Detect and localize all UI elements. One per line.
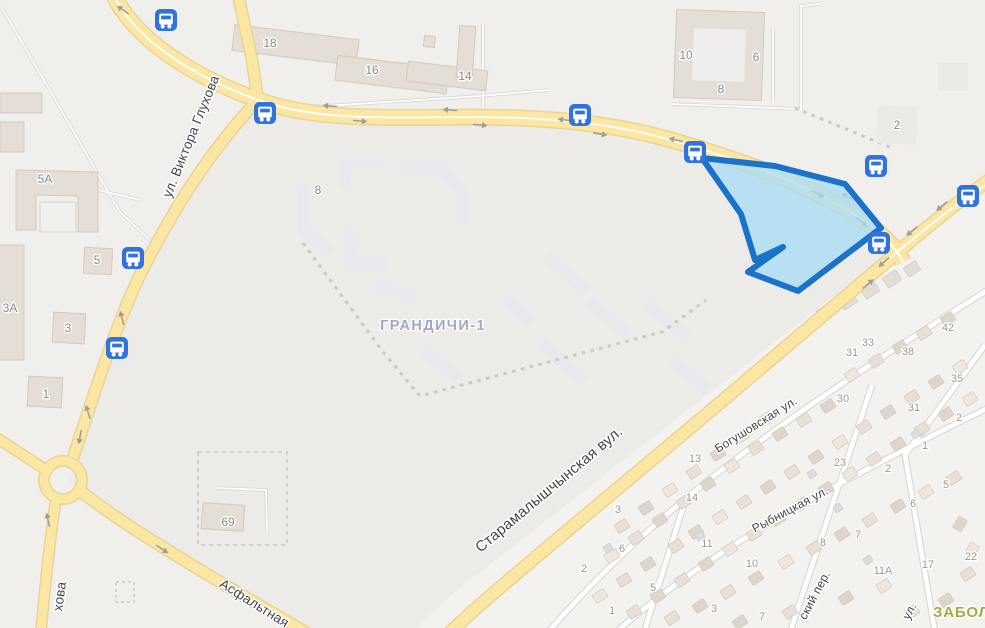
house-number: 1 [922, 440, 928, 452]
building-number: 3А [3, 301, 18, 315]
house-number: 14 [686, 492, 698, 504]
house-number: 1 [609, 605, 615, 617]
building-number: 69 [221, 515, 235, 529]
house-number: 7 [759, 611, 765, 623]
bus-stop-icon[interactable] [684, 141, 706, 163]
map-canvas[interactable]: 1816141068285А53А31693131411625110374233… [0, 0, 985, 628]
house-number: 31 [846, 347, 858, 359]
house-number: 38 [902, 346, 914, 358]
house-number: 31 [908, 402, 920, 414]
house-number: 6 [619, 543, 625, 555]
house-number: 35 [951, 373, 963, 385]
house-number: 11А [874, 565, 893, 577]
building-number: 14 [458, 69, 472, 83]
building-number: 10 [679, 48, 693, 62]
building-number: 2 [894, 118, 901, 132]
house-number: 42 [942, 322, 954, 334]
building-number: 5 [94, 253, 101, 267]
house-number: 13 [689, 453, 701, 465]
building-number: 1 [43, 387, 50, 401]
house-number: 6 [910, 498, 916, 510]
building-number: 8 [718, 82, 725, 96]
house-number: 2 [581, 563, 587, 575]
building-number: 18 [263, 36, 277, 50]
house-number: 22 [965, 551, 977, 563]
bus-stop-icon[interactable] [569, 104, 591, 126]
district-label: ГРАНДИЧИ-1 [380, 318, 486, 334]
bus-stop-icon[interactable] [155, 9, 177, 31]
house-number: 10 [746, 558, 758, 570]
house-number: 23 [834, 457, 846, 469]
district-label: ЗАБОЛ [933, 604, 985, 621]
building-number: 8 [315, 183, 322, 197]
building-number: 5А [38, 172, 53, 186]
building-number: 16 [365, 63, 379, 77]
bus-stop-icon[interactable] [106, 337, 128, 359]
house-number: 11 [701, 538, 712, 550]
house-number: 30 [837, 393, 849, 405]
bus-stop-icon[interactable] [957, 185, 979, 207]
bus-stop-icon[interactable] [254, 102, 276, 124]
house-number: 5 [650, 582, 656, 594]
house-number: 2 [956, 412, 962, 424]
house-number: 3 [615, 504, 621, 516]
house-number: 3 [711, 603, 717, 615]
house-number: 5 [943, 479, 949, 491]
bus-stop-icon[interactable] [865, 155, 887, 177]
bus-stop-icon[interactable] [122, 247, 144, 269]
house-number: 2 [885, 463, 891, 475]
house-number: 8 [820, 537, 826, 549]
bus-stop-icon[interactable] [868, 232, 890, 254]
house-number: 7 [855, 529, 861, 541]
house-number: 33 [862, 337, 874, 349]
map-view: 1816141068285А53А31693131411625110374233… [0, 0, 985, 628]
building-number: 6 [753, 50, 760, 64]
building-number: 3 [65, 321, 72, 335]
house-number: 17 [922, 559, 934, 571]
